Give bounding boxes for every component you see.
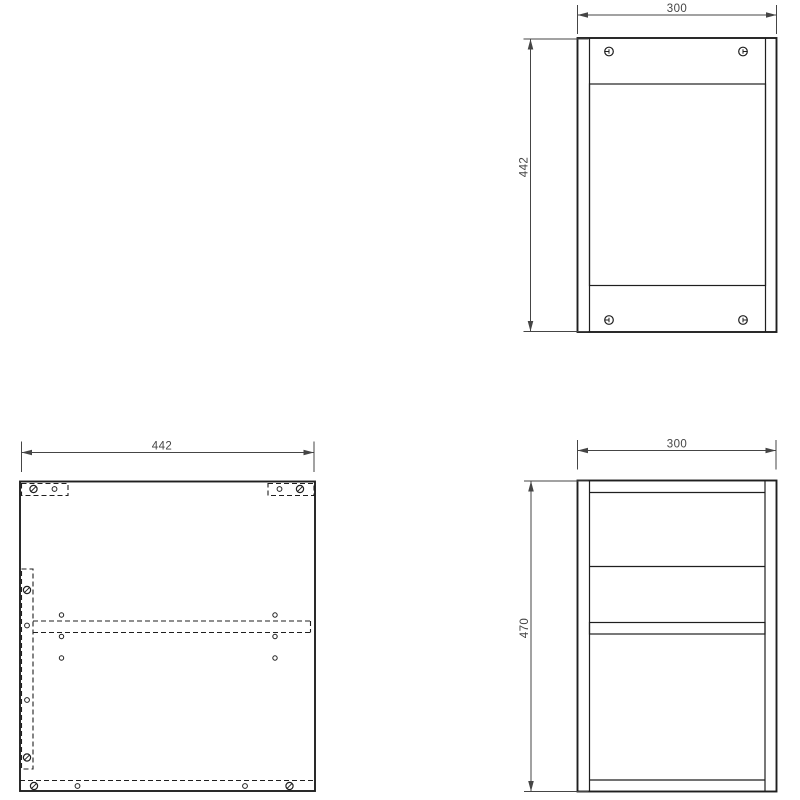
hidden-fitting-box [22, 484, 69, 496]
screw-icon [739, 316, 748, 325]
dimension-panel-width: 442 [22, 441, 315, 473]
drill-hole-icon [59, 613, 63, 617]
hidden-edge-strip [22, 569, 34, 769]
panel-view: 442 [20, 441, 315, 792]
panel-outline [20, 482, 315, 792]
cam-lock-icon [286, 782, 293, 789]
hidden-fitting-box [268, 484, 314, 496]
drill-hole-icon [273, 613, 277, 617]
side-view: 300 470 [519, 439, 777, 792]
technical-drawing-canvas: 300 442 [0, 0, 800, 800]
dimension-label: 470 [519, 618, 531, 638]
cam-lock-icon [23, 586, 30, 593]
drill-hole-icon [25, 698, 30, 703]
drill-hole-icon [52, 487, 57, 492]
screw-icon [605, 316, 614, 325]
drill-hole-icon [25, 623, 30, 628]
screw-icon [739, 47, 748, 56]
side-view-outline [578, 481, 777, 792]
drill-hole-icon [273, 656, 277, 660]
hidden-shelf-band [33, 621, 311, 633]
dimension-side-width: 300 [578, 439, 777, 470]
dimension-label: 300 [667, 3, 687, 15]
dimension-label: 300 [667, 439, 687, 451]
dimension-label: 442 [519, 157, 531, 177]
drill-hole-icon [59, 634, 63, 638]
cam-lock-icon [296, 485, 303, 492]
drill-hole-icon [277, 487, 282, 492]
cam-lock-icon [23, 754, 30, 761]
cam-lock-icon [30, 485, 37, 492]
dimension-label: 442 [152, 441, 172, 453]
screw-icon [605, 47, 614, 56]
dimension-front-width: 300 [578, 3, 777, 34]
front-view: 300 442 [519, 3, 777, 332]
front-back-panel-outline [590, 84, 766, 286]
middle-shelf-band [590, 623, 766, 635]
drill-hole-icon [59, 656, 63, 660]
drill-hole-icon [243, 784, 248, 789]
cam-lock-icon [30, 782, 37, 789]
front-view-outline [578, 38, 777, 332]
drill-hole-icon [273, 634, 277, 638]
drill-hole-icon [75, 784, 80, 789]
